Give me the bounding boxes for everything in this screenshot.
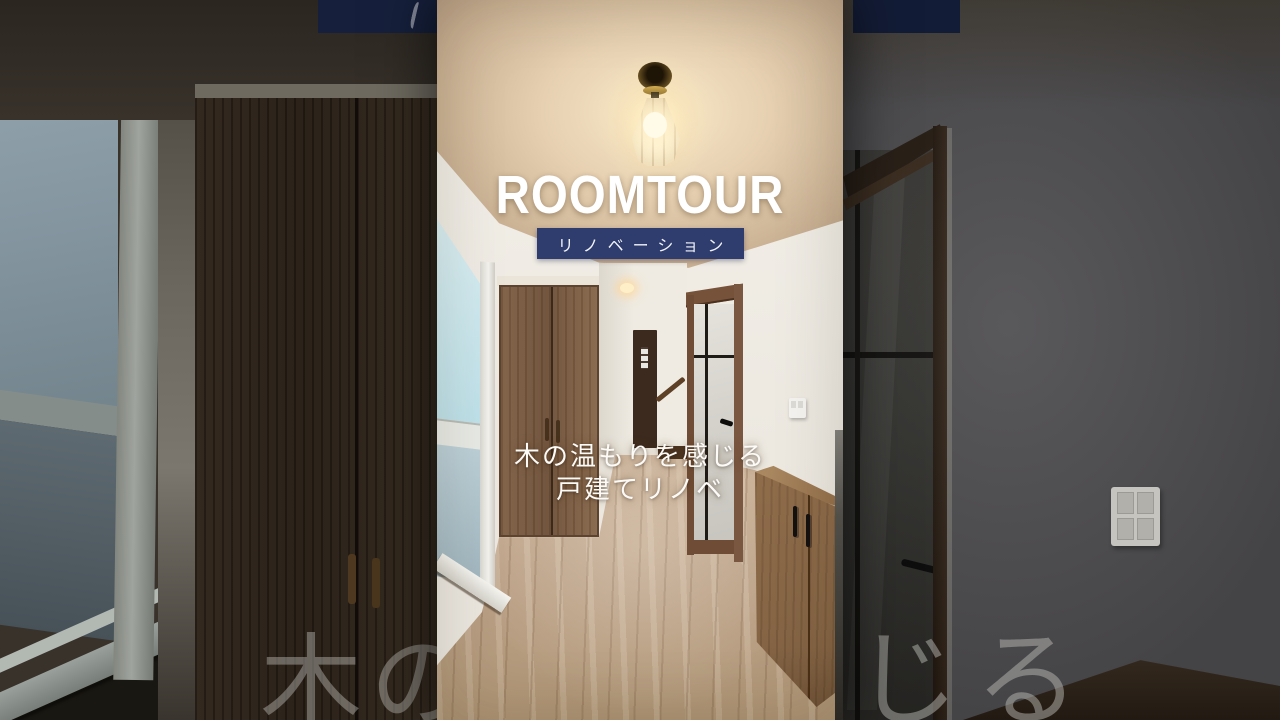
backdrop-watermark-right: じる [855, 630, 1095, 720]
video-stage[interactable]: ROOMTOUR リノベーション 木の温もりを感じる 戸建てリノベ [437, 0, 843, 720]
backdrop-closet-handle-left [348, 554, 356, 604]
backdrop-navy-banner-fragment-right [853, 0, 960, 33]
backdrop-closet-doors [195, 98, 437, 720]
backdrop-left-panel: 木の [0, 0, 437, 720]
wood-grain-texture [195, 98, 437, 720]
video-frame: 木の じる [0, 0, 1280, 720]
backdrop-watermark-left: 木の [260, 634, 437, 720]
video-vignette [437, 0, 843, 720]
backdrop-wall-sheen [843, 0, 1280, 720]
backdrop-light-switch [1111, 487, 1160, 546]
backdrop-closet-door-gap [355, 98, 358, 720]
backdrop-navy-banner-fragment-left [318, 0, 437, 33]
backdrop-window-lower-pane [0, 420, 118, 642]
backdrop-closet-handle-right [372, 558, 380, 608]
backdrop-right-panel: じる [843, 0, 1280, 720]
backdrop-banner-glyph-fragment [409, 1, 423, 29]
